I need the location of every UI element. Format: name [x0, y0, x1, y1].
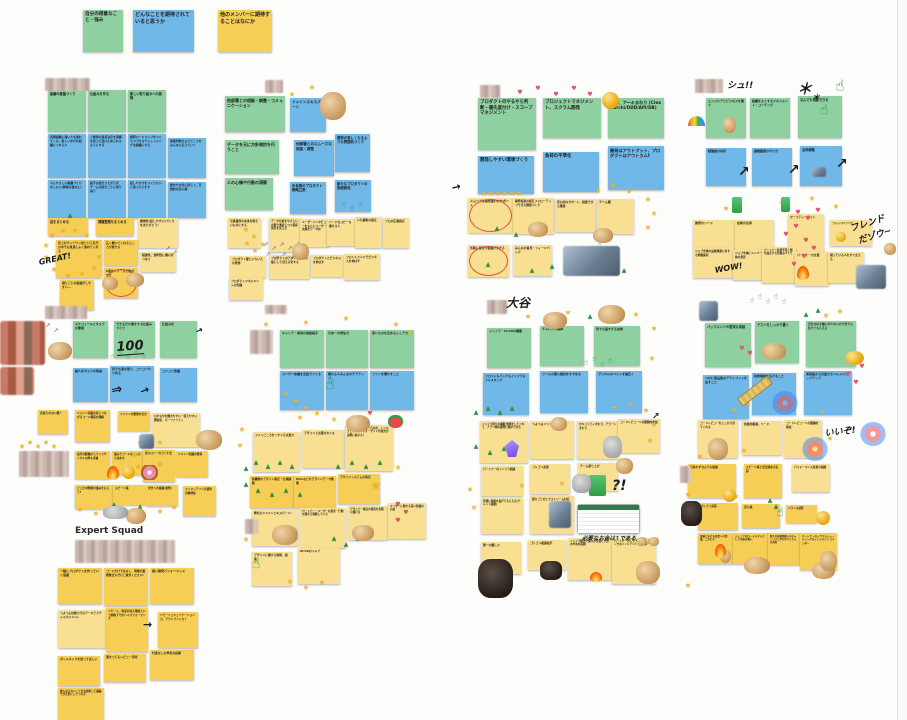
sheet-sticker[interactable]: [577, 504, 640, 534]
star-stamp-icon[interactable]: ★: [43, 440, 49, 447]
animal-sticker[interactable]: [598, 305, 625, 324]
star-stamp-icon[interactable]: ★: [43, 243, 49, 250]
plus-stamp-icon[interactable]: ↗: [281, 252, 286, 258]
heart-stamp-icon[interactable]: ♥: [571, 86, 576, 92]
sticky-note[interactable]: いち顧客の視点: [355, 217, 382, 248]
thumb-stamp-icon[interactable]: ☝: [774, 294, 778, 301]
sticky-note[interactable]: 安心的なサポート、相談できる環境: [555, 199, 596, 232]
star-stamp-icon[interactable]: ★: [651, 422, 657, 429]
legend-note[interactable]: 自分の得意なこと・強み: [83, 10, 123, 52]
star-stamp-icon[interactable]: ★: [91, 265, 97, 272]
dark-sticker[interactable]: [681, 501, 702, 526]
sticky-note[interactable]: 属人化タスクの削減: [73, 368, 108, 402]
photo-sticker[interactable]: [549, 501, 571, 528]
star-stamp-icon[interactable]: ★: [502, 191, 508, 198]
thumb-stamp-icon[interactable]: ☝: [252, 557, 261, 571]
plus-stamp-icon[interactable]: ↗: [271, 246, 276, 252]
star-stamp-icon[interactable]: ★: [331, 417, 337, 424]
photo-sticker[interactable]: [699, 301, 718, 321]
star-stamp-icon[interactable]: ★: [645, 225, 651, 232]
star-stamp-icon[interactable]: ★: [27, 440, 33, 447]
thumb-stamp-icon[interactable]: ☝: [600, 362, 604, 369]
heart-stamp-icon[interactable]: ♥: [747, 351, 752, 357]
star-stamp-icon[interactable]: ★: [19, 444, 25, 451]
tree-stamp-icon[interactable]: ▲: [550, 264, 555, 270]
handwriting-annotation[interactable]: 必要なお金は↑である: [582, 534, 636, 542]
star-stamp-icon[interactable]: ★: [837, 309, 843, 316]
thumb-stamp-icon[interactable]: ☝: [110, 354, 114, 361]
tree-stamp-icon[interactable]: ▲: [364, 464, 369, 470]
sticky-note[interactable]: 新たな技術領域へのチャレンジと学びのサイクルの共有: [768, 533, 800, 565]
star-stamp-icon[interactable]: ★: [65, 273, 71, 280]
heart-stamp-icon[interactable]: ♥: [805, 216, 810, 222]
animal-sticker[interactable]: [196, 430, 222, 450]
star-stamp-icon[interactable]: ★: [626, 189, 632, 196]
photo-sticker[interactable]: [139, 434, 154, 449]
star-stamp-icon[interactable]: ★: [252, 248, 258, 255]
tree-stamp-icon[interactable]: ▲: [266, 464, 271, 470]
misc-sticker[interactable]: [572, 474, 591, 493]
sticky-note[interactable]: チャレンジ精神: [540, 326, 584, 366]
star-stamp-icon[interactable]: ★: [697, 454, 703, 461]
star-stamp-icon[interactable]: ★: [314, 411, 320, 418]
sticky-note[interactable]: 西側組織に強い人を連れてくる。新しい学びを組織にくれる人: [48, 134, 86, 178]
censored-sticker[interactable]: [480, 85, 500, 98]
handwriting-annotation[interactable]: ↗: [652, 412, 660, 422]
tree-stamp-icon[interactable]: ▲: [244, 466, 249, 472]
sticky-note[interactable]: 日本一の発信力: [326, 330, 368, 368]
misc-sticker[interactable]: [103, 506, 128, 519]
handwriting-annotation[interactable]: →: [143, 618, 152, 631]
star-stamp-icon[interactable]: ★: [35, 444, 41, 451]
star-stamp-icon[interactable]: ★: [685, 583, 691, 590]
tree-stamp-icon[interactable]: ▲: [244, 482, 249, 488]
sticky-note[interactable]: リモートコミュニケーション力、アウトプット力↑: [158, 612, 198, 648]
animal-sticker[interactable]: [272, 525, 298, 545]
sticky-note[interactable]: コツコツ改善: [160, 368, 197, 402]
handwriting-annotation[interactable]: 大谷: [506, 294, 530, 311]
dark-sticker[interactable]: [540, 561, 562, 580]
sticky-note[interactable]: プロダクトのやるやら判断・優先度付け・スコープマネジメント: [478, 98, 536, 150]
heart-stamp-icon[interactable]: ♥: [587, 92, 592, 98]
star-stamp-icon[interactable]: ★: [645, 197, 651, 204]
star-stamp-icon[interactable]: ★: [303, 585, 309, 592]
star-stamp-icon[interactable]: ★: [263, 322, 269, 329]
thumb-stamp-icon[interactable]: ☝: [584, 360, 588, 367]
star-stamp-icon[interactable]: ★: [371, 479, 382, 491]
sticky-note[interactable]: プロダクトマネジメントの知識: [229, 278, 263, 300]
fw-sticker[interactable]: [860, 422, 886, 446]
tree-stamp-icon[interactable]: ▲: [350, 460, 355, 466]
tree-stamp-icon[interactable]: ▲: [486, 406, 491, 412]
sticky-note[interactable]: スピード感: [113, 485, 145, 505]
animal-sticker[interactable]: [48, 342, 72, 360]
handwriting-annotation[interactable]: シュ!!: [727, 78, 753, 91]
thumb-stamp-icon[interactable]: ☝: [325, 376, 335, 392]
animal-sticker[interactable]: [292, 243, 309, 260]
sticky-note[interactable]: インフラ・CI/CDの構築: [487, 328, 531, 368]
tree-stamp-icon[interactable]: ▲: [510, 406, 515, 412]
fw-sticker[interactable]: [772, 391, 798, 415]
green-sticker[interactable]: [732, 197, 742, 213]
animal-sticker[interactable]: [884, 243, 896, 255]
thumb-stamp-icon[interactable]: ☝: [358, 202, 362, 209]
star-stamp-icon[interactable]: ★: [343, 316, 349, 323]
sticky-note[interactable]: デジタルのベストを幅広く: [596, 371, 642, 413]
heart-stamp-icon[interactable]: ♥: [845, 372, 850, 378]
sticky-note[interactable]: スピード感と安定感ある実装: [744, 464, 782, 498]
fire-sticker[interactable]: [715, 544, 726, 558]
tree-stamp-icon[interactable]: ▲: [332, 536, 337, 542]
sticky-note[interactable]: インフラ観点で我々が見落とす点の早めの指摘: [568, 538, 612, 580]
star-stamp-icon[interactable]: ★: [651, 326, 657, 333]
censored-sticker[interactable]: [250, 330, 273, 354]
legend-note[interactable]: どんなことを期待されていると思うか: [133, 10, 194, 52]
tree-stamp-icon[interactable]: ▲: [290, 464, 295, 470]
tree-stamp-icon[interactable]: ▲: [278, 460, 283, 466]
tree-stamp-icon[interactable]: ▲: [344, 542, 349, 548]
sticky-note[interactable]: データを元に方針検討を行うこと: [225, 140, 279, 174]
sticky-note[interactable]: エンジニアリング感覚の教師役: [183, 486, 216, 516]
heart-stamp-icon[interactable]: ♥: [859, 364, 864, 370]
sticky-note[interactable]: 課題整理のやり方: [752, 148, 792, 186]
star-stamp-icon[interactable]: ★: [516, 191, 522, 198]
heart-stamp-icon[interactable]: ♥: [791, 262, 796, 268]
star-stamp-icon[interactable]: ★: [467, 487, 473, 494]
green-sticker[interactable]: [589, 475, 606, 496]
sticky-note[interactable]: 中長期のプロダクト戦略立案: [290, 182, 326, 214]
sticky-note[interactable]: 組織をよくするマネジメント・コーチング: [750, 98, 790, 138]
heart-stamp-icon[interactable]: ♥: [801, 254, 806, 260]
fire-sticker[interactable]: [107, 466, 119, 480]
star-stamp-icon[interactable]: ★: [303, 320, 309, 327]
tree-stamp-icon[interactable]: ▲: [68, 213, 73, 219]
sticky-note[interactable]: パートナー・ユーザーの意見・行動を踏まえ理解している: [300, 508, 346, 548]
sticky-note[interactable]: 開発ロードマップをつくりつづけるチャレンジングな組織にする: [128, 134, 166, 178]
sticky-note[interactable]: 誰も言えないことを言語化して議論できる形にしてくれる: [58, 688, 104, 720]
tree-stamp-icon[interactable]: ▲: [622, 268, 627, 274]
star-stamp-icon[interactable]: ★: [239, 427, 245, 434]
animal-sticker[interactable]: [762, 343, 786, 360]
legend-note[interactable]: 他のメンバーに期待することはなにか: [218, 10, 272, 52]
tree-stamp-icon[interactable]: ▲: [530, 268, 535, 274]
star-stamp-icon[interactable]: ★: [481, 191, 487, 198]
star-stamp-icon[interactable]: ★: [93, 511, 99, 518]
plus-stamp-icon[interactable]: ↗: [265, 252, 270, 258]
sticky-note[interactable]: 関係性(話しやすい)づくりをありがとう!: [138, 218, 178, 248]
tree-stamp-icon[interactable]: ▲: [804, 312, 809, 318]
sticky-note[interactable]: 相談性、透明性に関心をつなぐ: [140, 252, 176, 272]
star-stamp-icon[interactable]: ★: [244, 241, 250, 248]
star-stamp-icon[interactable]: ★: [643, 408, 649, 415]
donut-sticker[interactable]: [141, 465, 158, 480]
sticky-note[interactable]: つよつよ技術力でのアーキテクチャマネジメント: [58, 610, 106, 648]
handwriting-annotation[interactable]: ?!: [612, 478, 627, 494]
star-stamp-icon[interactable]: ★: [319, 580, 325, 587]
sticky-note[interactable]: 技術の伝承: [735, 220, 774, 250]
thumb-stamp-icon[interactable]: ☝: [835, 79, 844, 94]
animal-sticker[interactable]: [102, 277, 118, 290]
gold-sticker[interactable]: [723, 489, 736, 502]
heart-stamp-icon[interactable]: ♥: [803, 238, 808, 244]
tree-stamp-icon[interactable]: ▲: [474, 444, 479, 450]
animal-sticker[interactable]: [352, 525, 374, 541]
sticky-note[interactable]: バランス感覚: [786, 505, 817, 523]
thumb-stamp-icon[interactable]: ☝: [782, 299, 786, 306]
star-stamp-icon[interactable]: ★: [84, 233, 90, 240]
thumb-stamp-icon[interactable]: ☝: [592, 356, 596, 363]
star-stamp-icon[interactable]: ★: [293, 399, 299, 406]
sticky-note[interactable]: 他部署との相談・調整・コミュニケーション: [225, 96, 285, 132]
star-stamp-icon[interactable]: ★: [131, 452, 137, 459]
section-label[interactable]: Expert Squad: [75, 526, 143, 536]
star-stamp-icon[interactable]: ★: [49, 233, 55, 240]
rainbow-sticker[interactable]: [688, 116, 705, 126]
sticky-note[interactable]: 課題整理をまとめる: [96, 218, 134, 236]
animal-sticker[interactable]: [723, 117, 736, 133]
tree-stamp-icon[interactable]: ▲: [336, 464, 341, 470]
sticky-note[interactable]: 長年の経験からライフサイクル以降も考慮: [75, 451, 110, 479]
sticky-note[interactable]: ドメイン知識の習得: [176, 451, 208, 477]
heart-stamp-icon[interactable]: ♥: [739, 346, 744, 352]
sticky-note[interactable]: 人の心情や行動の洞察: [225, 178, 273, 210]
plus-stamp-icon[interactable]: ↗: [273, 256, 278, 262]
star-stamp-icon[interactable]: ★: [287, 579, 293, 586]
star-stamp-icon[interactable]: ★: [519, 483, 525, 490]
sticky-note[interactable]: 歴史や文化に詳しく、圧倒的な安心感: [168, 182, 206, 218]
star-stamp-icon[interactable]: ★: [633, 312, 639, 319]
sticky-note[interactable]: スケジュールとタスクの管理: [73, 321, 108, 358]
star-stamp-icon[interactable]: ★: [283, 392, 289, 399]
animal-sticker[interactable]: [543, 312, 567, 329]
star-stamp-icon[interactable]: ★: [651, 211, 657, 218]
heart-stamp-icon[interactable]: ♥: [517, 90, 522, 96]
star-stamp-icon[interactable]: ★: [79, 271, 85, 278]
animal-sticker[interactable]: [820, 551, 837, 571]
tree-stamp-icon[interactable]: ▲: [768, 498, 773, 504]
star-stamp-icon[interactable]: ★: [51, 444, 57, 451]
sticky-note[interactable]: ファンを増やすこと: [370, 371, 414, 410]
sticky-note[interactable]: 一緒にプロダクトを作っていく意識: [58, 568, 102, 604]
animal-sticker[interactable]: [126, 273, 144, 287]
tree-stamp-icon[interactable]: ▲: [298, 492, 303, 498]
plus-stamp-icon[interactable]: ↗: [53, 328, 58, 334]
sticky-note[interactable]: ツールの導入検討をすすめる: [540, 371, 588, 413]
star-stamp-icon[interactable]: ★: [243, 537, 249, 544]
animal-sticker[interactable]: [320, 92, 346, 120]
handwriting-annotation[interactable]: →: [450, 180, 462, 195]
melon-sticker[interactable]: [388, 415, 403, 428]
handwriting-annotation[interactable]: ↗: [788, 162, 800, 178]
star-stamp-icon[interactable]: ★: [60, 228, 66, 235]
animal-sticker[interactable]: [551, 417, 567, 431]
thumb-stamp-icon[interactable]: ☝: [750, 298, 754, 305]
sticky-note[interactable]: 開発が楽しくなるような雰囲気づくり: [335, 134, 370, 172]
sticky-note[interactable]: パートナーのインフラ相談: [481, 466, 523, 496]
star-stamp-icon[interactable]: ★: [823, 313, 829, 320]
star-stamp-icon[interactable]: ★: [309, 85, 315, 92]
sticky-note[interactable]: ゴリゴリ実装: [698, 503, 738, 530]
thumb-stamp-icon[interactable]: ☝: [758, 294, 762, 301]
thumb-stamp-icon[interactable]: ☝: [776, 506, 783, 518]
animal-sticker[interactable]: [637, 537, 647, 546]
sticky-note[interactable]: プロジェクトマネジメント、スクラム開発: [543, 98, 601, 138]
censored-sticker[interactable]: [19, 451, 69, 477]
censored-sticker[interactable]: [695, 79, 723, 93]
sticky-note[interactable]: 上層部の意思決定を理解を持って受け止められるようにする: [88, 134, 126, 178]
heart-stamp-icon[interactable]: ♥: [367, 411, 372, 417]
star-stamp-icon[interactable]: ★: [237, 443, 243, 450]
thumb-stamp-icon[interactable]: ☝: [142, 354, 146, 361]
plus-stamp-icon[interactable]: ↗: [279, 242, 284, 248]
fire-sticker[interactable]: [797, 266, 809, 280]
star-stamp-icon[interactable]: ★: [157, 509, 163, 516]
censored-sticker[interactable]: [45, 78, 90, 91]
handwriting-annotation[interactable]: いいぞ!: [824, 423, 856, 439]
star-stamp-icon[interactable]: ★: [731, 408, 737, 415]
photo-sticker[interactable]: [812, 167, 826, 177]
tree-stamp-icon[interactable]: ▲: [256, 488, 261, 494]
photo-sticker[interactable]: [856, 265, 886, 289]
animal-sticker[interactable]: [649, 537, 659, 546]
star-stamp-icon[interactable]: ★: [819, 410, 825, 417]
animal-sticker[interactable]: [708, 438, 728, 460]
handwriting-annotation[interactable]: ↗: [738, 164, 750, 180]
star-stamp-icon[interactable]: ★: [685, 492, 691, 499]
star-stamp-icon[interactable]: ★: [251, 234, 257, 241]
star-stamp-icon[interactable]: ★: [72, 228, 78, 235]
sticky-note[interactable]: プロダクトとビジネスを伸ばす: [311, 255, 343, 277]
censored-sticker[interactable]: [487, 300, 507, 314]
star-stamp-icon[interactable]: ★: [303, 406, 309, 413]
censored-sticker[interactable]: [45, 306, 87, 319]
mosaic-sticker[interactable]: [0, 321, 45, 365]
tree-stamp-icon[interactable]: ▲: [816, 308, 821, 314]
star-stamp-icon[interactable]: ★: [162, 450, 168, 457]
star-stamp-icon[interactable]: ★: [171, 505, 177, 512]
censored-sticker[interactable]: [265, 80, 283, 93]
star-stamp-icon[interactable]: ★: [51, 267, 57, 274]
photo-sticker[interactable]: [563, 246, 620, 276]
star-stamp-icon[interactable]: ★: [559, 481, 565, 488]
heart-stamp-icon[interactable]: ♥: [811, 246, 816, 252]
tree-stamp-icon[interactable]: ▲: [495, 226, 500, 232]
sticky-note[interactable]: プロの広報視点: [383, 218, 409, 248]
handwriting-annotation[interactable]: ＊: [797, 78, 812, 99]
star-stamp-icon[interactable]: ★: [488, 191, 494, 198]
tree-stamp-icon[interactable]: ▲: [488, 450, 493, 456]
dark-sticker[interactable]: [478, 559, 513, 598]
star-stamp-icon[interactable]: ★: [647, 438, 653, 445]
star-stamp-icon[interactable]: ★: [649, 356, 655, 363]
heart-stamp-icon[interactable]: ♥: [783, 232, 788, 238]
star-stamp-icon[interactable]: ★: [94, 242, 100, 249]
mosaic-sticker[interactable]: [0, 367, 34, 395]
star-stamp-icon[interactable]: ★: [471, 505, 477, 512]
star-stamp-icon[interactable]: ★: [495, 191, 501, 198]
sticky-note[interactable]: 開発のリード: [693, 220, 737, 248]
sticky-note[interactable]: 他部署とのスムーズな相談・調整: [294, 140, 334, 176]
sticky-note[interactable]: 技術的相談、リード: [742, 421, 782, 455]
tree-stamp-icon[interactable]: ▲: [514, 232, 519, 238]
thumb-stamp-icon[interactable]: ☝: [766, 299, 770, 306]
sticky-note[interactable]: 組織の基盤づくり: [48, 90, 86, 132]
thumb-stamp-icon[interactable]: ☝: [342, 202, 346, 209]
star-stamp-icon[interactable]: ★: [243, 227, 249, 234]
heart-stamp-icon[interactable]: ♥: [553, 92, 558, 98]
sticky-note[interactable]: ハードなコピーも書ける人: [327, 219, 356, 246]
star-stamp-icon[interactable]: ★: [723, 206, 729, 213]
misc-sticker[interactable]: [603, 436, 622, 458]
thumb-stamp-icon[interactable]: ☝: [820, 103, 829, 117]
tree-stamp-icon[interactable]: ▲: [254, 460, 259, 466]
gold-sticker[interactable]: [816, 511, 830, 525]
star-stamp-icon[interactable]: ★: [407, 330, 413, 337]
tree-stamp-icon[interactable]: ▲: [284, 488, 289, 494]
heart-stamp-icon[interactable]: ♥: [395, 518, 400, 524]
heart-stamp-icon[interactable]: ♥: [395, 502, 400, 508]
star-stamp-icon[interactable]: ★: [393, 322, 399, 329]
star-stamp-icon[interactable]: ★: [77, 507, 83, 514]
star-stamp-icon[interactable]: ★: [96, 254, 102, 261]
sticky-note[interactable]: パフォーマンス改善の相談: [792, 464, 830, 492]
animal-sticker[interactable]: [126, 508, 146, 524]
sticky-note[interactable]: 相手の話をさえぎらず、チームの困りごとに寄り添う: [88, 180, 126, 218]
heart-stamp-icon[interactable]: ♥: [815, 208, 820, 214]
animal-sticker[interactable]: [744, 557, 770, 574]
sticky-note[interactable]: 溜まってるレビュー消化: [104, 654, 146, 682]
sticky-note[interactable]: ドメインの整理の仕方: [118, 411, 150, 431]
gold-sticker[interactable]: [602, 92, 619, 109]
heart-stamp-icon[interactable]: ♥: [793, 224, 798, 230]
censored-sticker[interactable]: [680, 466, 691, 483]
gold-sticker[interactable]: [836, 232, 846, 242]
plus-stamp-icon[interactable]: ↗: [172, 250, 177, 256]
sticky-note[interactable]: 開発はアウトプット、プロダクトはアウトカム†: [608, 146, 664, 190]
censored-sticker[interactable]: [75, 540, 175, 563]
sticky-note[interactable]: 話しやすさをつくりたいと思っています: [128, 180, 166, 218]
star-stamp-icon[interactable]: ★: [395, 465, 401, 472]
star-stamp-icon[interactable]: ★: [157, 440, 163, 447]
star-stamp-icon[interactable]: ★: [833, 204, 839, 211]
star-stamp-icon[interactable]: ★: [741, 448, 747, 455]
sticky-note[interactable]: ボトルネックを拾ってほしい: [58, 656, 100, 686]
sticky-note[interactable]: 気軽に相談を投げてもらえる(チャット相談): [481, 498, 523, 534]
star-stamp-icon[interactable]: ★: [627, 402, 633, 409]
heart-stamp-icon[interactable]: ♥: [403, 510, 408, 516]
sticky-note[interactable]: 仕組み化: [160, 321, 197, 358]
sticky-note[interactable]: 新しい取り組みへの挑戦: [128, 90, 166, 132]
sticky-note[interactable]: ドメイン知識共有につながるコード構造の理解: [75, 410, 110, 442]
plus-stamp-icon[interactable]: ↗: [45, 323, 50, 329]
thumb-stamp-icon[interactable]: ☝: [350, 206, 354, 213]
tree-stamp-icon[interactable]: ▲: [270, 492, 275, 498]
star-stamp-icon[interactable]: ★: [809, 196, 815, 203]
sticky-note[interactable]: プロダクト愛といろいろな発想: [230, 256, 266, 278]
sticky-note[interactable]: 見返りのない愛!: [38, 410, 68, 434]
thumb-stamp-icon[interactable]: ☝: [608, 358, 612, 365]
tree-stamp-icon[interactable]: ▲: [498, 410, 503, 416]
sticky-note[interactable]: リモート、時差のある環境という制約下でのハイパフォーマンス: [106, 608, 148, 652]
tree-stamp-icon[interactable]: ▲: [474, 410, 479, 416]
sticky-note[interactable]: 高い開発パフォーマンス: [150, 568, 194, 604]
sticky-note[interactable]: 事業判断のよりどころをみんなに伝えていく: [168, 138, 206, 178]
heart-stamp-icon[interactable]: ♥: [795, 210, 800, 216]
animal-sticker[interactable]: [528, 222, 548, 237]
sticky-note[interactable]: 負荷の平準化: [543, 152, 599, 192]
star-stamp-icon[interactable]: ★: [289, 92, 295, 99]
censored-sticker[interactable]: [265, 305, 287, 314]
